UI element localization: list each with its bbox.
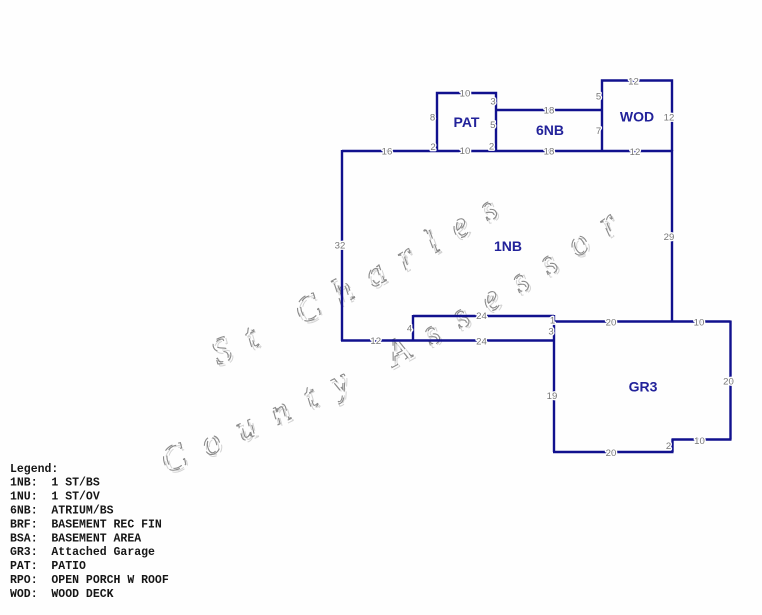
svg-text:RPO: OPEN PORCH W ROOF: RPO: OPEN PORCH W ROOF: [10, 574, 169, 587]
svg-text:20: 20: [606, 448, 617, 459]
svg-text:10: 10: [694, 436, 705, 447]
svg-text:12: 12: [370, 336, 381, 347]
svg-text:2: 2: [489, 142, 494, 153]
svg-text:WOD: WOD: [620, 109, 654, 125]
svg-text:7: 7: [596, 126, 601, 137]
svg-text:12: 12: [628, 77, 639, 88]
svg-text:5: 5: [596, 92, 601, 103]
svg-text:PAT: PAT: [454, 114, 480, 130]
svg-text:5: 5: [490, 120, 495, 131]
svg-text:24: 24: [476, 337, 487, 348]
svg-text:3: 3: [548, 327, 553, 338]
svg-text:2: 2: [666, 441, 671, 452]
svg-text:20: 20: [723, 377, 734, 388]
svg-text:3: 3: [490, 97, 495, 108]
svg-text:GR3: GR3: [629, 379, 658, 395]
svg-text:32: 32: [335, 241, 346, 252]
svg-text:2: 2: [430, 142, 435, 153]
svg-text:8: 8: [430, 113, 435, 124]
svg-text:PAT: PATIO: PAT: PATIO: [10, 560, 86, 573]
svg-text:1: 1: [550, 316, 555, 327]
svg-text:12: 12: [630, 147, 641, 158]
svg-text:Legend:: Legend:: [10, 463, 58, 476]
svg-text:12: 12: [664, 113, 675, 124]
svg-text:16: 16: [382, 147, 393, 158]
svg-text:19: 19: [547, 391, 558, 402]
svg-text:20: 20: [606, 318, 617, 329]
svg-text:1NB: 1 ST/BS: 1NB: 1 ST/BS: [10, 477, 100, 490]
svg-text:BRF: BASEMENT REC FIN: BRF: BASEMENT REC FIN: [10, 518, 162, 531]
svg-text:10: 10: [694, 318, 705, 329]
svg-text:18: 18: [544, 106, 555, 117]
svg-text:WOD: WOOD DECK: WOD: WOOD DECK: [10, 588, 114, 601]
svg-text:BSA: BASEMENT AREA: BSA: BASEMENT AREA: [10, 532, 141, 545]
svg-text:29: 29: [664, 232, 675, 243]
svg-text:10: 10: [460, 89, 471, 100]
svg-text:6NB: 6NB: [536, 122, 564, 138]
svg-text:1NU: 1 ST/OV: 1NU: 1 ST/OV: [10, 491, 100, 504]
svg-text:10: 10: [460, 146, 471, 157]
svg-text:24: 24: [476, 311, 487, 322]
svg-text:1NB: 1NB: [494, 238, 522, 254]
svg-text:18: 18: [544, 147, 555, 158]
svg-text:GR3: Attached Garage: GR3: Attached Garage: [10, 546, 155, 559]
svg-text:4: 4: [407, 324, 413, 335]
svg-text:6NB: ATRIUM/BS: 6NB: ATRIUM/BS: [10, 505, 114, 518]
